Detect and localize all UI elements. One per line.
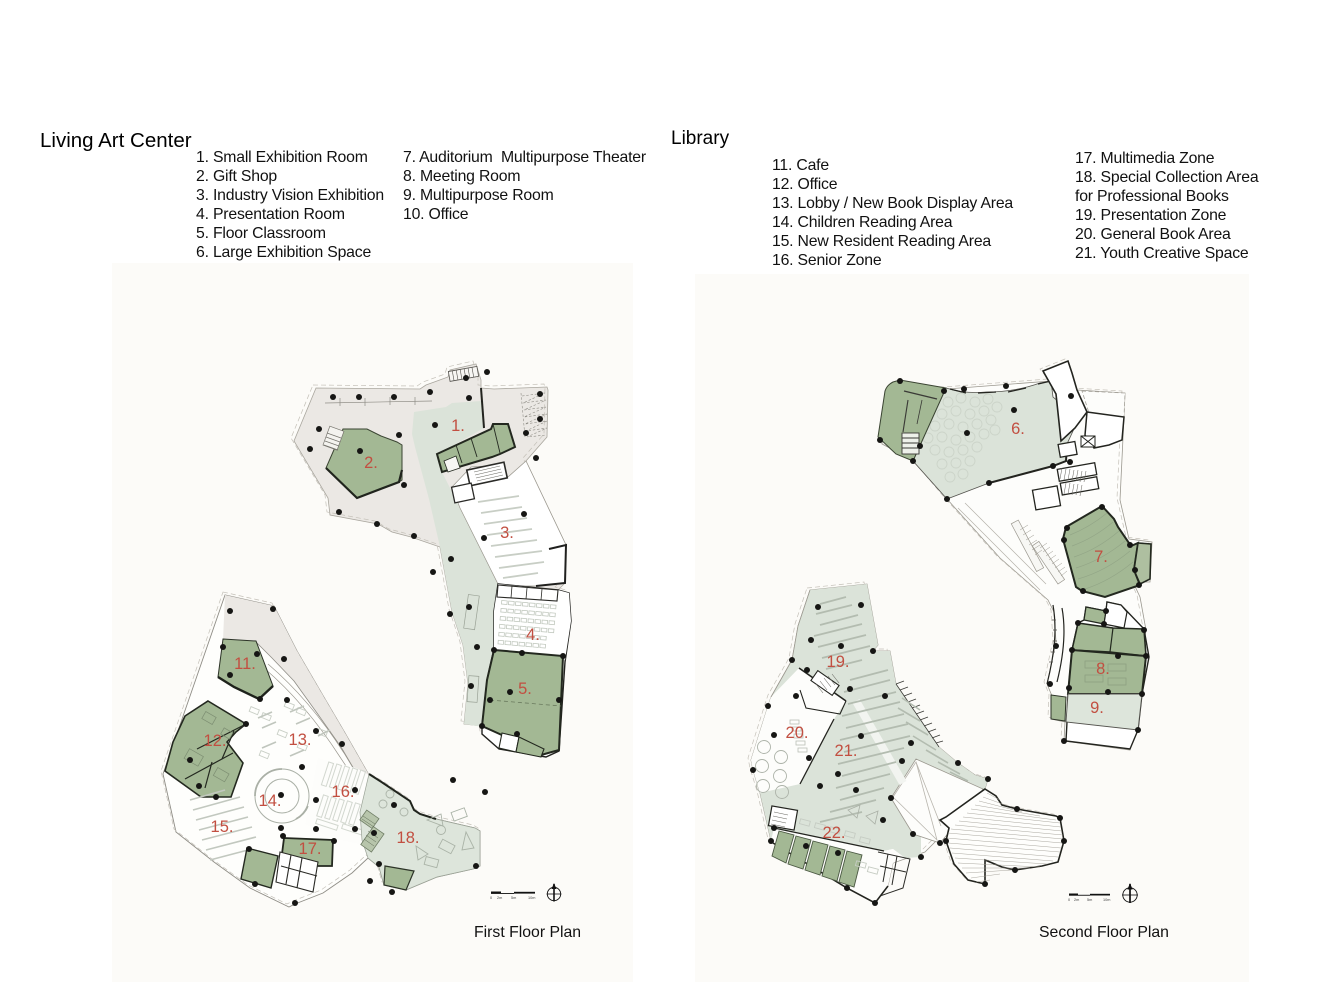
svg-text:Second Floor Plan: Second Floor Plan <box>1039 924 1169 941</box>
svg-text:8. Meeting Room: 8. Meeting Room <box>403 168 520 185</box>
svg-text:17. Multimedia Zone: 17. Multimedia Zone <box>1075 150 1215 167</box>
svg-text:17.: 17. <box>299 840 322 858</box>
svg-text:5m: 5m <box>1087 898 1092 902</box>
svg-text:First Floor Plan: First Floor Plan <box>474 924 581 941</box>
svg-text:5.: 5. <box>518 680 532 698</box>
svg-text:2. Gift Shop: 2. Gift Shop <box>196 168 277 185</box>
svg-text:16. Senior Zone: 16. Senior Zone <box>772 252 882 269</box>
svg-text:10. Office: 10. Office <box>403 206 469 223</box>
svg-text:0: 0 <box>1068 898 1070 902</box>
svg-text:10m: 10m <box>1103 898 1110 902</box>
svg-text:10m: 10m <box>528 896 535 900</box>
svg-text:7.: 7. <box>1094 548 1108 566</box>
svg-text:11.: 11. <box>234 655 256 673</box>
svg-text:19. Presentation Zone: 19. Presentation Zone <box>1075 207 1227 224</box>
svg-text:20. General Book Area: 20. General Book Area <box>1075 226 1231 243</box>
svg-text:20.: 20. <box>786 724 809 742</box>
svg-text:5. Floor Classroom: 5. Floor Classroom <box>196 225 326 242</box>
svg-text:3.: 3. <box>500 524 514 542</box>
svg-text:for Professional Books: for Professional Books <box>1075 188 1229 205</box>
svg-text:0: 0 <box>490 896 492 900</box>
svg-text:Living Art Center: Living Art Center <box>40 129 192 152</box>
svg-text:19.: 19. <box>827 653 850 671</box>
svg-text:1. Small Exhibition Room: 1. Small Exhibition Room <box>196 149 368 166</box>
svg-text:6. Large Exhibition Space: 6. Large Exhibition Space <box>196 244 371 261</box>
svg-text:12. Office: 12. Office <box>772 176 838 193</box>
svg-text:2.: 2. <box>364 454 378 472</box>
svg-text:1.: 1. <box>451 417 465 435</box>
svg-text:22.: 22. <box>823 824 846 842</box>
svg-text:4.: 4. <box>526 626 540 644</box>
svg-text:15. New Resident Reading Area: 15. New Resident Reading Area <box>772 233 991 250</box>
svg-text:Library: Library <box>671 128 730 149</box>
svg-text:14. Children Reading Area: 14. Children Reading Area <box>772 214 953 231</box>
svg-text:18. Special Collection Area: 18. Special Collection Area <box>1075 169 1259 186</box>
svg-text:6.: 6. <box>1011 420 1025 438</box>
svg-text:8.: 8. <box>1096 660 1110 678</box>
svg-text:2m: 2m <box>497 896 502 900</box>
svg-text:13.: 13. <box>289 731 312 749</box>
svg-text:4. Presentation Room: 4. Presentation Room <box>196 206 345 223</box>
svg-text:3. Industry Vision Exhibition: 3. Industry Vision Exhibition <box>196 187 384 204</box>
svg-text:18.: 18. <box>397 829 420 847</box>
svg-text:2m: 2m <box>1074 898 1079 902</box>
svg-text:13. Lobby / New Book Display A: 13. Lobby / New Book Display Area <box>772 195 1013 212</box>
svg-text:21. Youth Creative Space: 21. Youth Creative Space <box>1075 245 1249 262</box>
svg-text:9.: 9. <box>1090 699 1104 717</box>
svg-text:12.: 12. <box>204 732 227 750</box>
svg-text:15.: 15. <box>211 818 234 836</box>
svg-text:9. Multipurpose Room: 9. Multipurpose Room <box>403 187 554 204</box>
svg-text:21.: 21. <box>835 742 858 760</box>
svg-text:16.: 16. <box>332 783 355 801</box>
svg-text:11. Cafe: 11. Cafe <box>772 157 829 174</box>
svg-text:7. Auditorium Multipurpose Th: 7. Auditorium Multipurpose Theater <box>403 149 646 166</box>
svg-text:5m: 5m <box>511 896 516 900</box>
